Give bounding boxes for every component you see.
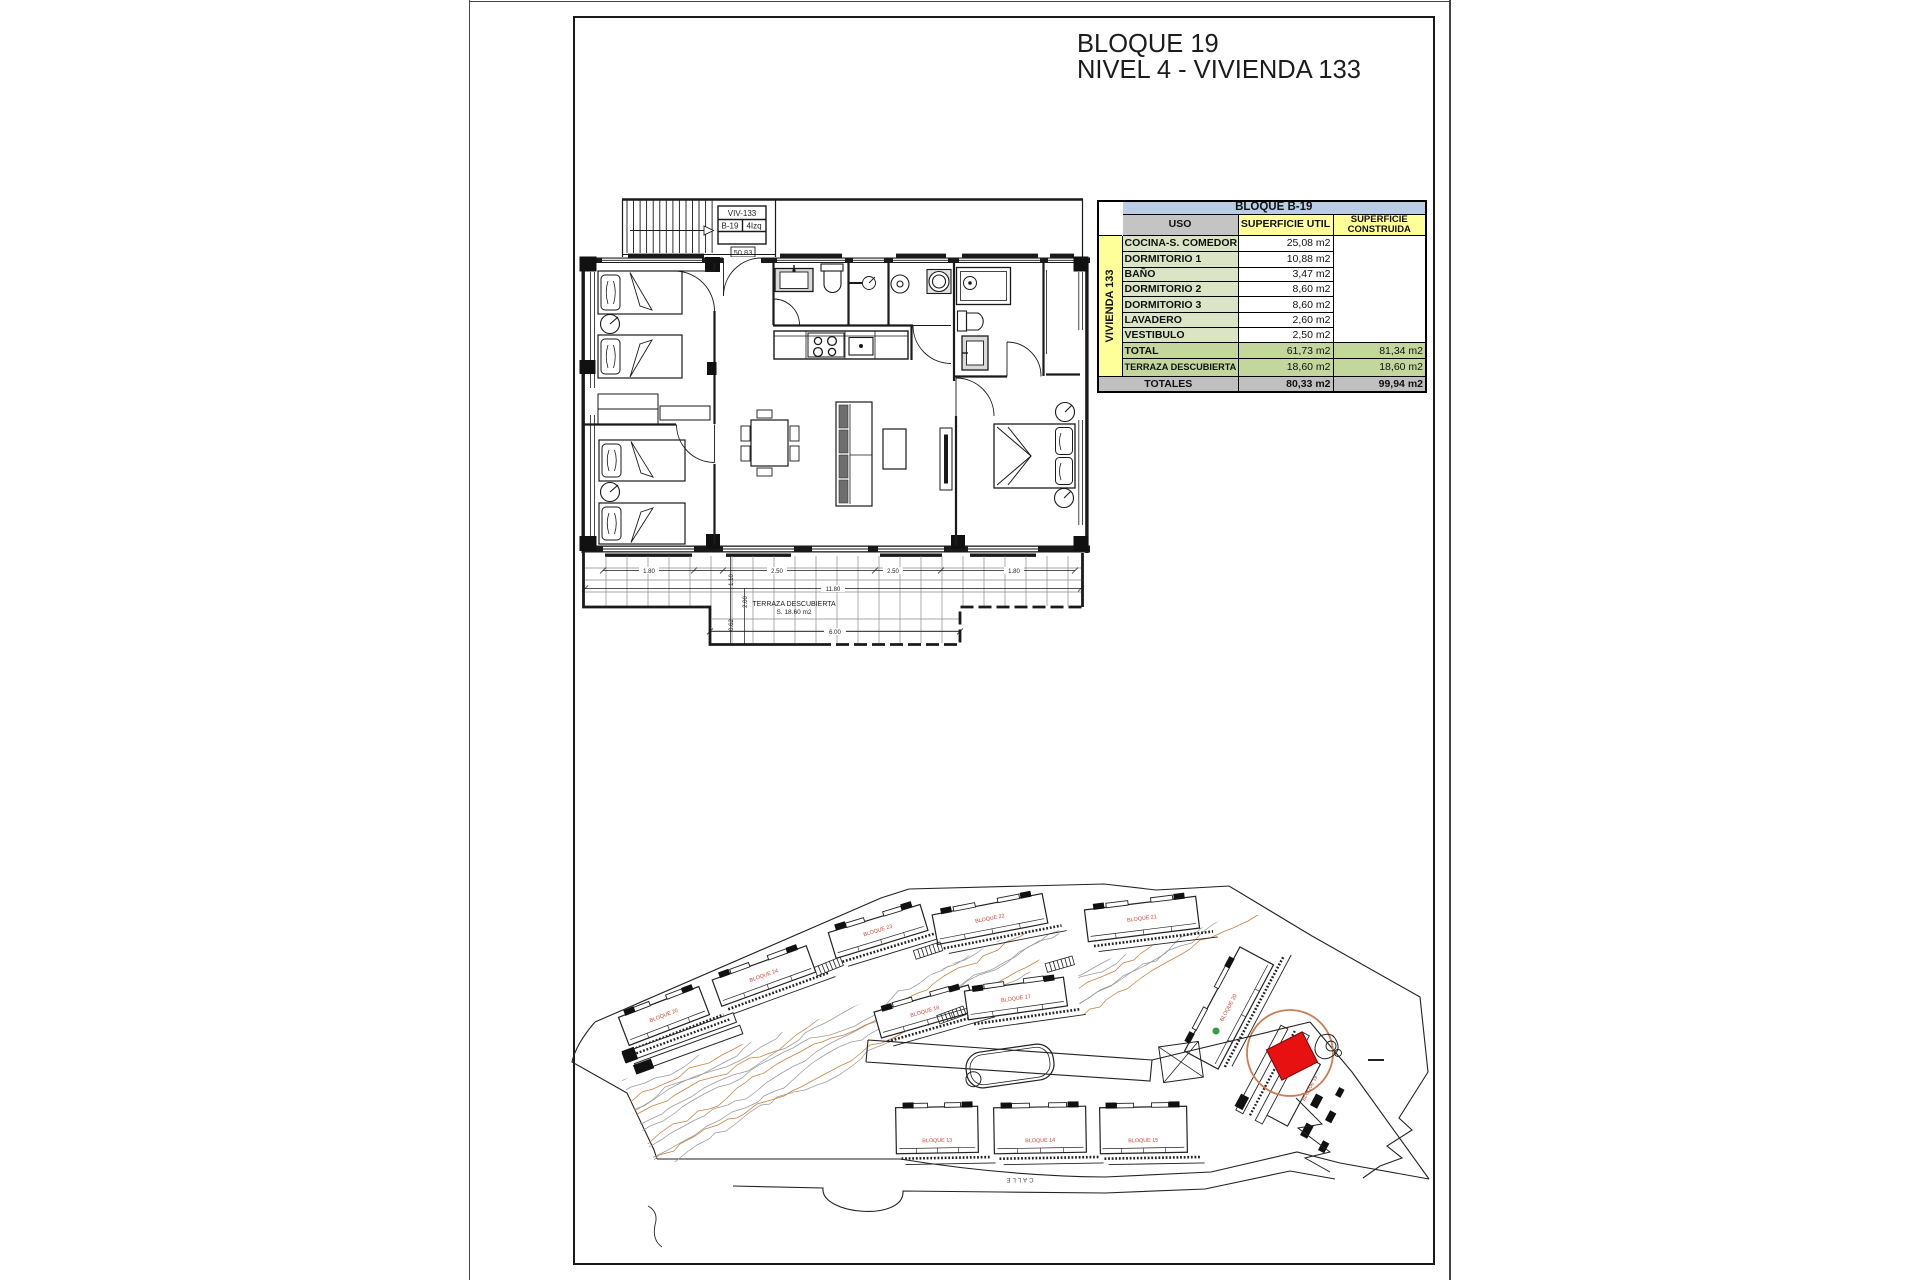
svg-text:4Izq: 4Izq xyxy=(746,222,761,231)
svg-text:1.80: 1.80 xyxy=(643,569,655,575)
svg-text:TERRAZA DESCUBIERTA: TERRAZA DESCUBIERTA xyxy=(752,601,836,608)
svg-text:11.80: 11.80 xyxy=(826,587,841,593)
svg-text:B-19: B-19 xyxy=(722,222,739,231)
svg-text:BLOQUE 13: BLOQUE 13 xyxy=(922,1138,952,1145)
svg-text:50.83: 50.83 xyxy=(734,248,753,257)
svg-text:BLOQUE 14: BLOQUE 14 xyxy=(1025,1138,1055,1145)
svg-text:0.62: 0.62 xyxy=(729,619,735,631)
svg-text:VIV-133: VIV-133 xyxy=(728,209,757,218)
svg-text:6.00: 6.00 xyxy=(829,630,841,636)
svg-text:CALLE: CALLE xyxy=(1004,1176,1033,1182)
svg-text:2.50: 2.50 xyxy=(887,569,899,575)
svg-text:2.50: 2.50 xyxy=(771,569,783,575)
svg-text:BLOQUE 15: BLOQUE 15 xyxy=(1128,1138,1158,1145)
svg-text:2.00: 2.00 xyxy=(743,596,749,608)
svg-text:S. 18.60 m2: S. 18.60 m2 xyxy=(776,609,811,616)
svg-text:1.10: 1.10 xyxy=(729,574,735,586)
svg-text:1.80: 1.80 xyxy=(1008,569,1020,575)
